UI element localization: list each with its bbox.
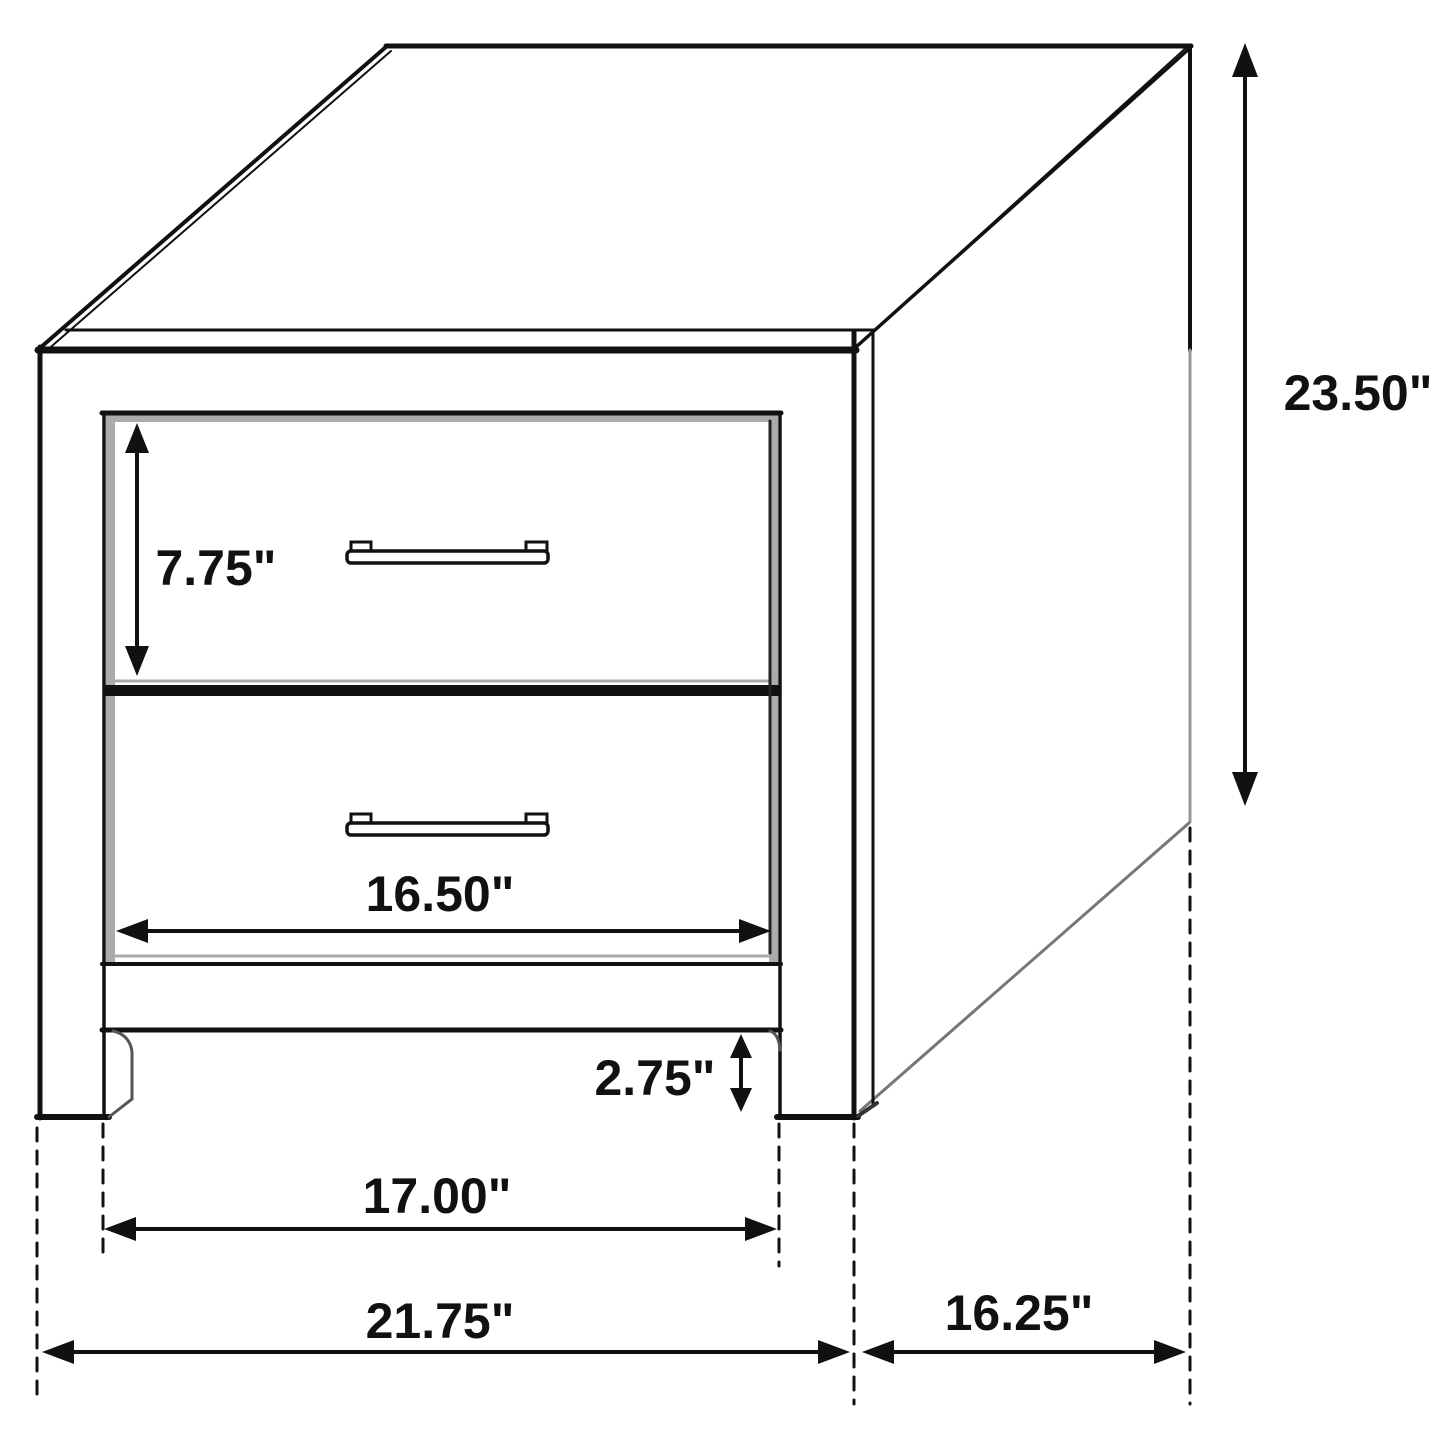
- label-side-depth: 16.25": [945, 1285, 1094, 1341]
- label-overall-height: 23.50": [1284, 365, 1433, 421]
- label-overall-width: 21.75": [366, 1293, 515, 1349]
- diagram-canvas: 7.75" 23.50" 16.50" 2.75" 17.00" 21.75" …: [0, 0, 1445, 1445]
- handle-2-bar: [347, 823, 548, 835]
- label-top-drawer-height: 7.75": [155, 540, 276, 596]
- drawer-divider-gap: [104, 685, 780, 696]
- handle-1-bar: [347, 551, 548, 563]
- label-inner-leg-span: 17.00": [363, 1168, 512, 1224]
- label-drawer-width: 16.50": [366, 866, 515, 922]
- nightstand-dimension-drawing: 7.75" 23.50" 16.50" 2.75" 17.00" 21.75" …: [0, 0, 1445, 1445]
- label-leg-clearance: 2.75": [594, 1050, 715, 1106]
